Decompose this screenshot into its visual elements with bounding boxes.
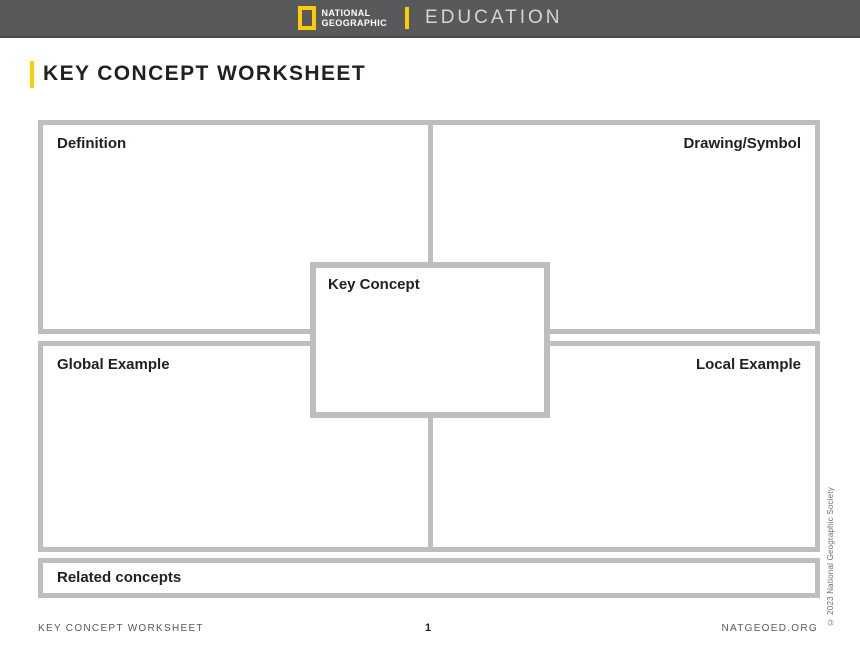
related-concepts-box: Related concepts (38, 558, 820, 598)
education-brand-label: EDUCATION (425, 7, 562, 29)
copyright-notice: © 2023 National Geographic Society (826, 487, 835, 626)
footer-website-link[interactable]: NATGEOED.ORG (721, 623, 818, 634)
footer-worksheet-title: KEY CONCEPT WORKSHEET (38, 623, 204, 634)
natgeo-logo: NATIONAL GEOGRAPHIC EDUCATION (298, 6, 563, 30)
related-concepts-label: Related concepts (43, 563, 815, 586)
worksheet-page: NATIONAL GEOGRAPHIC EDUCATION KEY CONCEP… (0, 0, 860, 665)
natgeo-frame-icon (298, 6, 316, 30)
brand-header-bar: NATIONAL GEOGRAPHIC EDUCATION (0, 0, 860, 38)
drawing-symbol-label: Drawing/Symbol (433, 125, 815, 152)
page-number: 1 (398, 622, 458, 634)
natgeo-logo-line2: GEOGRAPHIC (322, 18, 388, 28)
natgeo-logo-text: NATIONAL GEOGRAPHIC (322, 8, 388, 29)
key-concept-box: Key Concept (310, 262, 550, 418)
brand-separator-bar (405, 7, 409, 29)
title-accent-bar (30, 61, 34, 88)
key-concept-label: Key Concept (316, 268, 544, 293)
page-title: KEY CONCEPT WORKSHEET (43, 62, 366, 86)
title-row: KEY CONCEPT WORKSHEET (30, 60, 366, 88)
definition-label: Definition (43, 125, 428, 152)
natgeo-logo-line1: NATIONAL (322, 8, 388, 18)
